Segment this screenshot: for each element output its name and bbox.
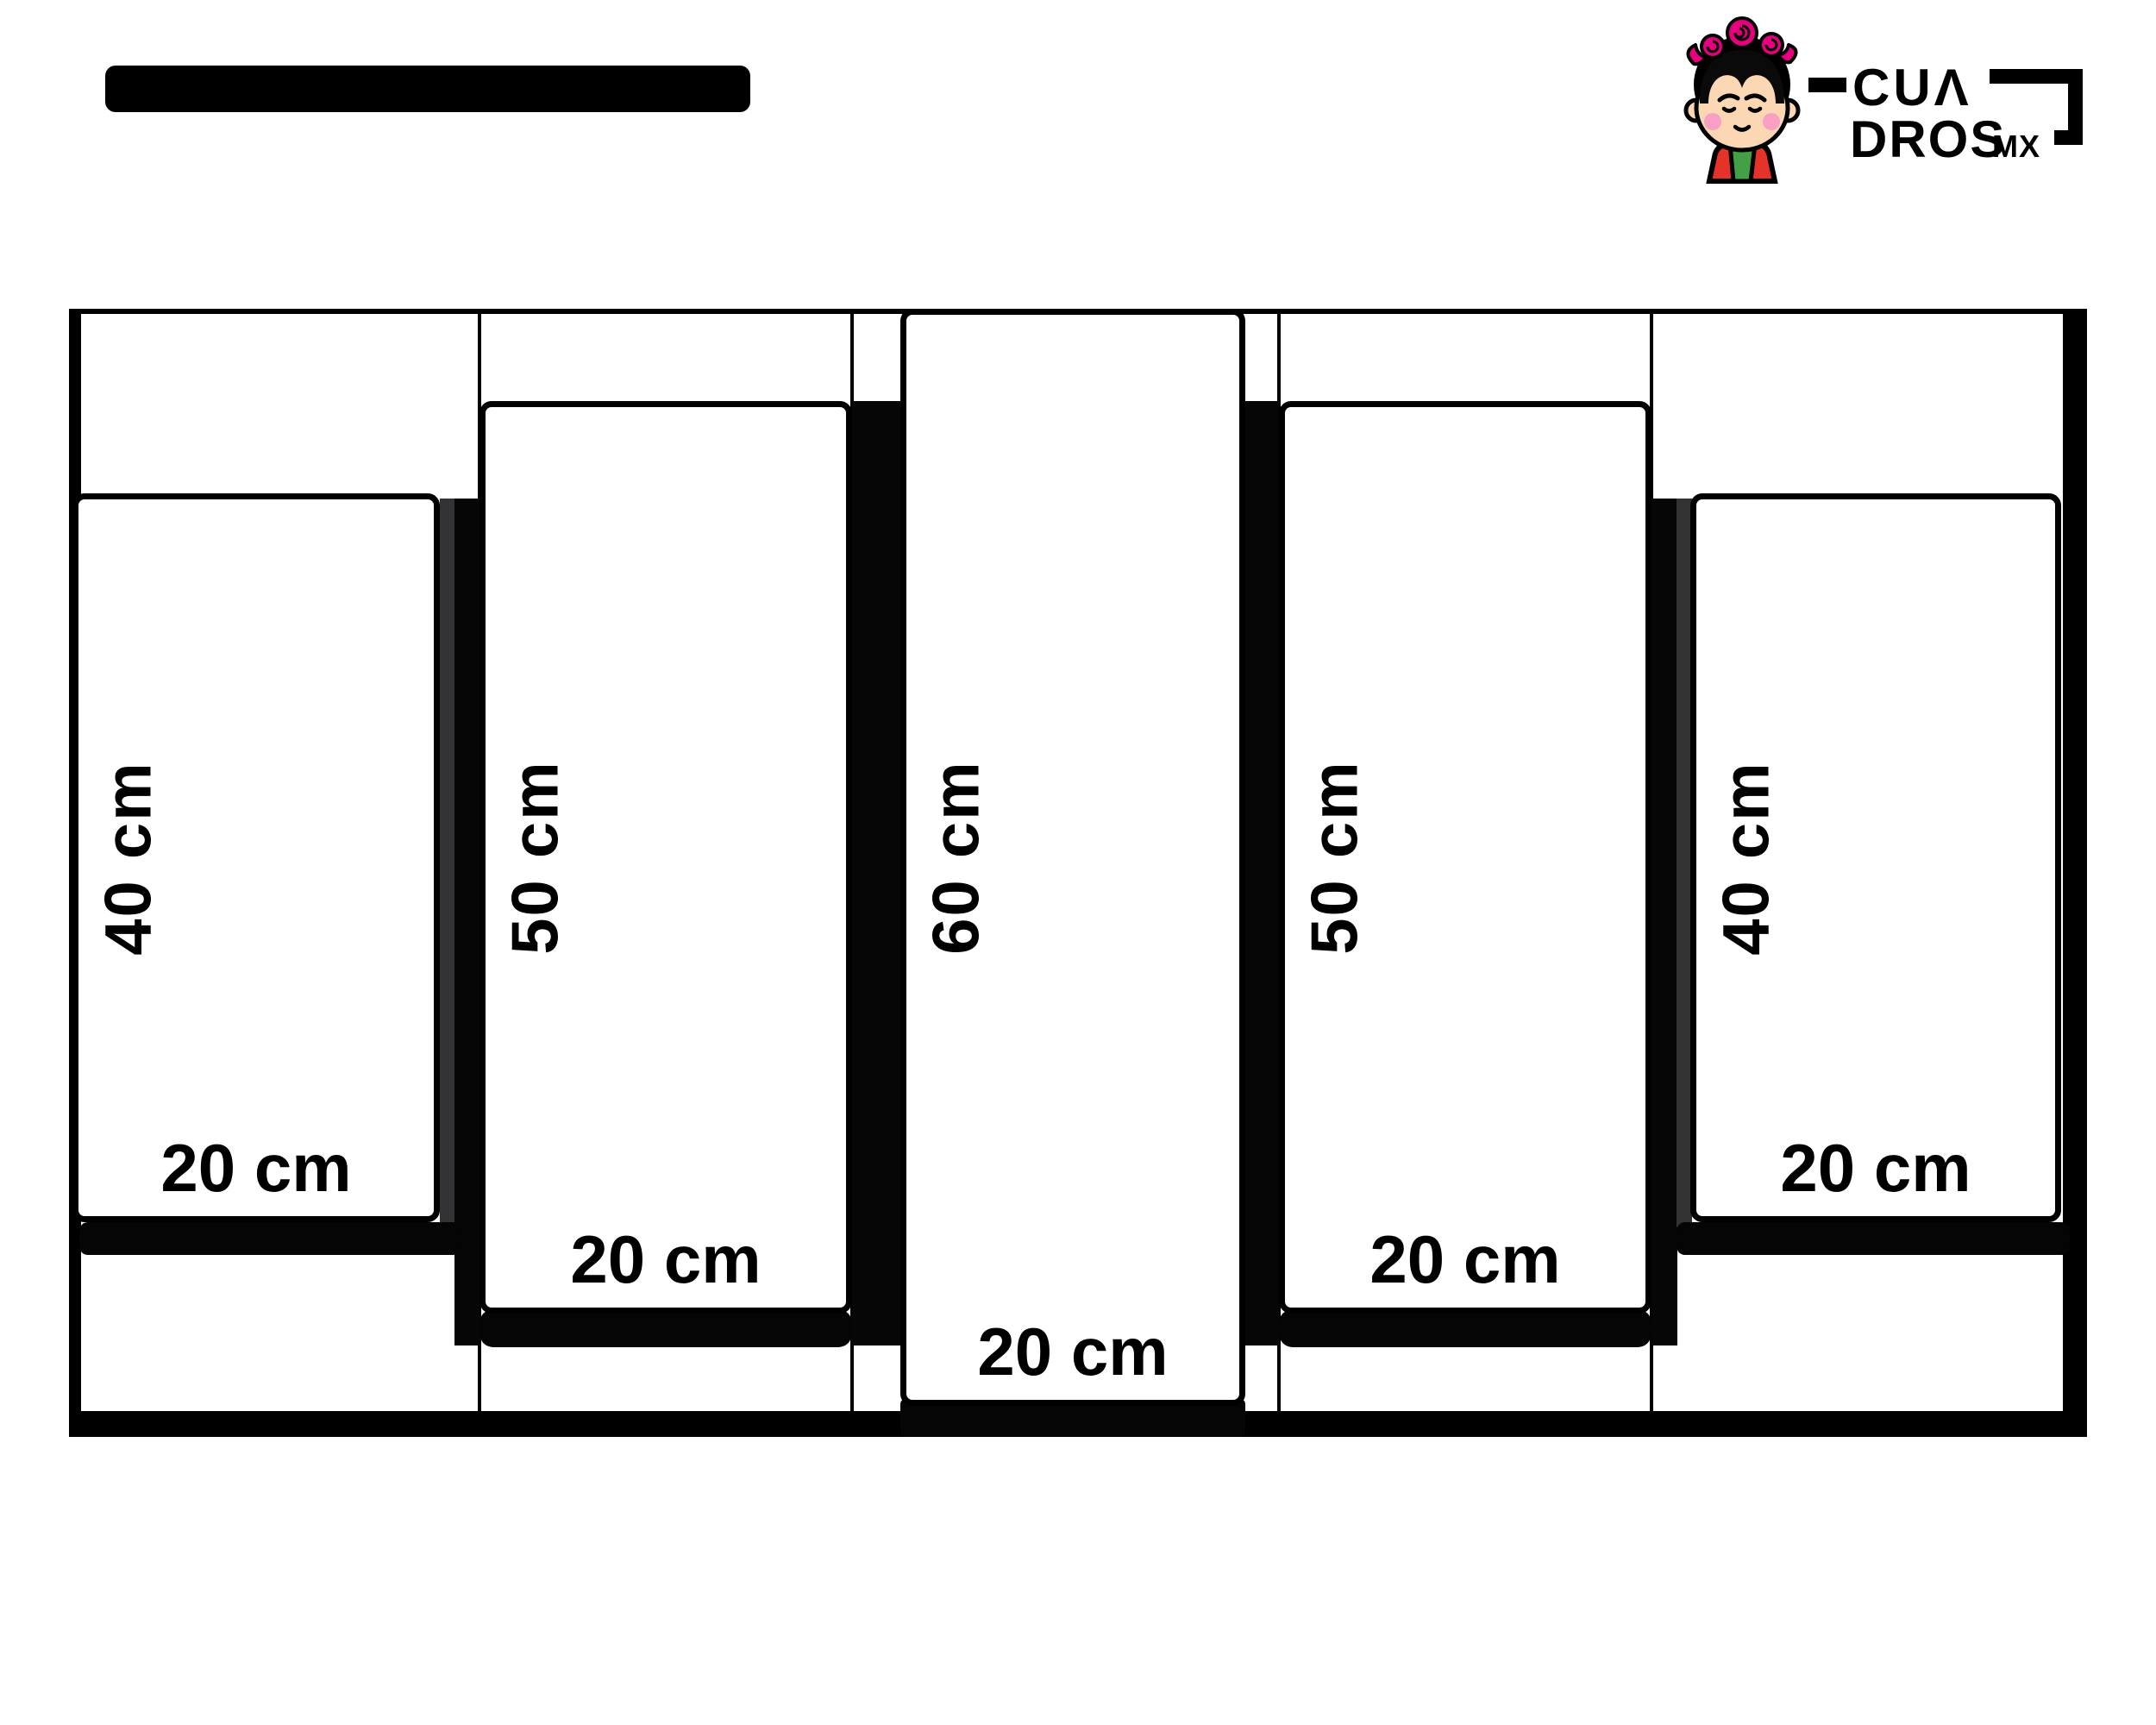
frame-dash-left (1808, 78, 1846, 92)
panel-40cm-right: 40 cm 20 cm (1690, 493, 2061, 1222)
panel-width-label: 20 cm (1369, 1220, 1560, 1299)
panel-width-label: 20 cm (977, 1313, 1168, 1391)
panel-width-label: 20 cm (570, 1220, 761, 1299)
panel-height-label: 60 cm (919, 760, 994, 955)
panel-2-bottom-shadow (479, 1309, 852, 1347)
frame-bar-foot (2054, 130, 2083, 145)
panel-1-side-shadow (440, 499, 455, 1227)
panel-50cm-left: 50 cm 20 cm (479, 401, 852, 1314)
panel-40cm-left: 40 cm 20 cm (72, 493, 440, 1222)
gap-strip (454, 499, 479, 1345)
panel-1-bottom-shadow (79, 1222, 462, 1255)
gap-strip (1651, 499, 1677, 1345)
gap-strip (852, 401, 900, 1345)
panel-height-label: 50 cm (498, 760, 573, 955)
panel-50cm-right: 50 cm 20 cm (1279, 401, 1651, 1314)
panel-width-label: 20 cm (160, 1129, 351, 1207)
brand-logo: CUΛ DROS MX (1680, 9, 2089, 188)
gap-strip (1245, 401, 1279, 1345)
panel-height-label: 40 cm (91, 761, 166, 956)
panel-60cm-center: 60 cm 20 cm (900, 309, 1245, 1406)
redacted-title-bar (105, 66, 750, 112)
panel-5-bottom-shadow (1677, 1222, 2070, 1255)
panel-height-label: 50 cm (1298, 760, 1373, 955)
brand-text-top: CUΛ (1852, 59, 1972, 116)
brand-text-suffix: MX (1992, 129, 2040, 164)
brand-wordmark: CUΛ DROS MX (1808, 59, 2083, 168)
panel-height-label: 40 cm (1709, 761, 1784, 956)
panel-4-bottom-shadow (1279, 1309, 1651, 1347)
brand-text-bottom: DROS (1850, 110, 2006, 168)
panel-width-label: 20 cm (1780, 1129, 1971, 1207)
frida-character-icon (1686, 18, 1798, 181)
